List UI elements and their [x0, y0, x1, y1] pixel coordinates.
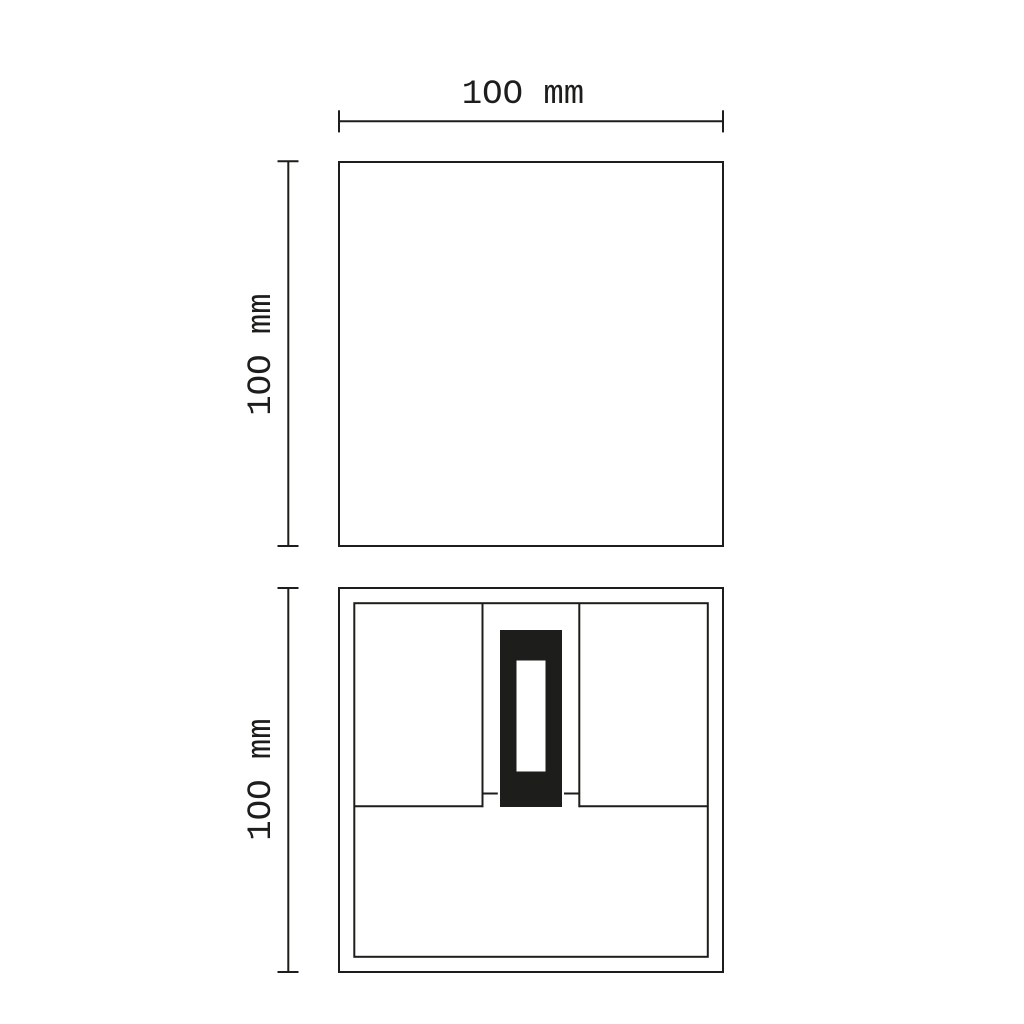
svg-text:1OO mm: 1OO mm	[243, 293, 281, 415]
svg-text:1OO mm: 1OO mm	[462, 76, 584, 114]
svg-text:1OO mm: 1OO mm	[243, 718, 281, 840]
